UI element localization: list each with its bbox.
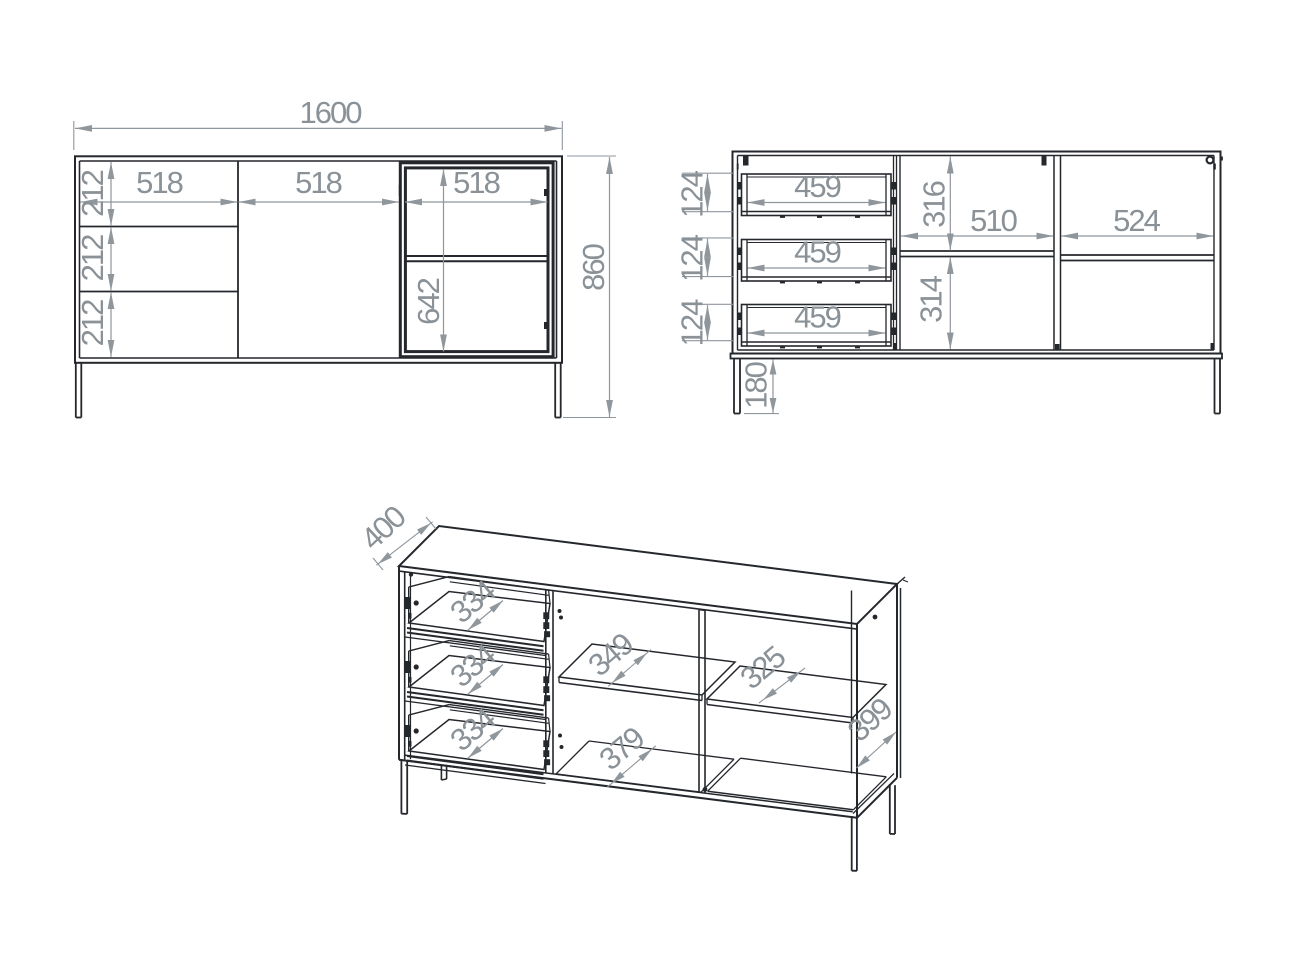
- svg-text:124: 124: [675, 299, 710, 346]
- svg-text:212: 212: [75, 170, 110, 216]
- svg-text:642: 642: [411, 278, 446, 324]
- svg-text:314: 314: [914, 275, 949, 322]
- svg-text:459: 459: [794, 235, 840, 270]
- svg-text:459: 459: [794, 169, 840, 204]
- svg-text:860: 860: [576, 243, 611, 290]
- svg-text:518: 518: [453, 165, 499, 200]
- svg-text:459: 459: [794, 300, 840, 335]
- svg-text:124: 124: [675, 170, 710, 217]
- svg-text:212: 212: [75, 235, 110, 281]
- svg-text:212: 212: [75, 300, 110, 346]
- svg-text:1600: 1600: [300, 95, 363, 130]
- svg-text:316: 316: [917, 181, 952, 227]
- svg-text:180: 180: [739, 361, 774, 408]
- svg-text:518: 518: [295, 165, 341, 200]
- svg-text:124: 124: [675, 234, 710, 281]
- svg-text:510: 510: [970, 203, 1017, 238]
- svg-text:518: 518: [136, 165, 182, 200]
- svg-text:524: 524: [1113, 203, 1160, 238]
